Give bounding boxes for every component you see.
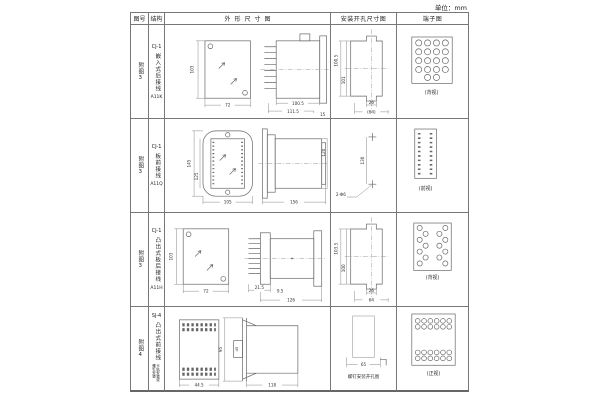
terminal-view-label: (前视) bbox=[418, 185, 432, 192]
mount-dim-v1: 103.5 bbox=[333, 242, 338, 254]
mount-dim-w2: (64) bbox=[367, 109, 376, 114]
outline-drawing-row1: 103 72 100.5 111.5 15 bbox=[165, 25, 331, 119]
outline-svg-row1: 103 72 100.5 111.5 15 bbox=[165, 25, 330, 118]
structure-label: 凸出式板后接线 bbox=[154, 237, 160, 283]
mounting-drawing-row2: 130 2-Φ6 bbox=[331, 119, 397, 213]
terminal-view-label: (背视) bbox=[425, 274, 439, 281]
mounting-drawing-row1: 100.5 101 26 (64) bbox=[331, 25, 397, 119]
dim-front-width: 105 bbox=[224, 200, 232, 205]
mount-dim-w1: 26 bbox=[369, 288, 375, 293]
mounting-drawing-row4: 65 螺钉安装开孔图 bbox=[331, 307, 397, 392]
dim-side-height: 120 bbox=[321, 148, 326, 156]
mounting-svg-row1: 100.5 101 26 (64) bbox=[331, 25, 396, 118]
outline-svg-row4: 44.5 95 45 118 bbox=[165, 308, 330, 389]
mounting-svg-row3: 103.5 100 26 64 bbox=[331, 213, 396, 306]
type-code-label: A11K bbox=[151, 95, 163, 100]
dim-front-height: 103 bbox=[190, 65, 195, 73]
terminal-svg-row4: (正视) bbox=[398, 308, 468, 389]
structure-label: 板前接线 bbox=[154, 153, 160, 179]
terminal-svg-row2: (前视) bbox=[398, 119, 468, 212]
dim-body-length: 118 bbox=[268, 383, 276, 388]
fig-no-row4: 附图4 bbox=[131, 307, 149, 392]
outline-svg-row2: 145 125 105 156 120 bbox=[165, 119, 330, 212]
dim-front-width: 72 bbox=[203, 289, 209, 294]
dim-flange: 15 bbox=[320, 112, 326, 117]
dim-inner: 45 bbox=[235, 346, 239, 351]
header-fig-no: 图号 bbox=[131, 13, 149, 25]
outline-drawing-row3: 103 72 21.5 9.5 126 bbox=[165, 213, 331, 307]
mounting-svg-row2: 130 2-Φ6 bbox=[331, 119, 396, 212]
header-mounting: 安装开孔尺寸图 bbox=[331, 13, 397, 25]
terminal-svg-row1: (背视) bbox=[398, 25, 468, 118]
mount-dim-w2: 64 bbox=[369, 297, 375, 302]
terminal-drawing-row4: (正视) bbox=[397, 307, 468, 392]
header-terminal: 端子图 bbox=[397, 13, 468, 25]
header-outline: 外形尺寸图 bbox=[165, 13, 331, 25]
outline-drawing-row2: 145 125 105 156 120 bbox=[165, 119, 331, 213]
dim-side-height: 95 bbox=[218, 346, 223, 352]
terminal-drawing-row1: (背视) bbox=[397, 25, 468, 119]
fig-no-label: 附图3 bbox=[137, 156, 143, 176]
structure-row1: CJ-1 嵌入式后接线 A11K bbox=[149, 25, 165, 119]
model-label: CJ-1 bbox=[152, 144, 162, 150]
type-code-label: A11H bbox=[150, 286, 162, 291]
fig-no-label: 附图3 bbox=[137, 250, 143, 270]
dim-fin-length: 21.5 bbox=[255, 285, 265, 290]
mounting-svg-row4: 65 螺钉安装开孔图 bbox=[331, 308, 396, 389]
mount-hole-note: 2-Φ6 bbox=[336, 192, 346, 197]
mount-dim-w1: 65 bbox=[361, 362, 367, 367]
dim-front-height: 145 bbox=[187, 159, 192, 167]
structure-label: 凸出式前接线 bbox=[154, 322, 160, 361]
model-label: CJ-1 bbox=[152, 44, 162, 50]
fig-no-row1: 附图3 bbox=[131, 25, 149, 119]
mounting-drawing-row3: 103.5 100 26 64 bbox=[331, 213, 397, 307]
mount-dim-v2: 101 bbox=[341, 76, 346, 84]
terminal-drawing-row3: (背视) bbox=[397, 213, 468, 307]
mount-dim-v2: 100 bbox=[341, 264, 346, 272]
mounting-note-label: 卡轨安装或螺钉安装 bbox=[152, 364, 160, 384]
fig-no-label: 附图3 bbox=[137, 62, 143, 82]
mount-dim-v1: 130 bbox=[360, 156, 365, 164]
unit-note: 单位：mm bbox=[435, 2, 467, 12]
outline-drawing-row4: 44.5 95 45 118 bbox=[165, 307, 331, 392]
mount-dim-v1: 100.5 bbox=[333, 54, 338, 66]
structure-row4: SJ-4 凸出式前接线 卡轨安装或螺钉安装 bbox=[149, 307, 165, 392]
model-label: CJ-1 bbox=[152, 228, 162, 234]
model-label: SJ-4 bbox=[152, 313, 161, 319]
fig-no-row2: 附图3 bbox=[131, 119, 149, 213]
fig-no-label: 附图4 bbox=[137, 339, 143, 359]
dim-total-length: 126 bbox=[287, 298, 295, 303]
mounting-caption: 螺钉安装开孔图 bbox=[348, 373, 380, 380]
dim-total-length: 111.5 bbox=[287, 109, 299, 114]
dim-front-width: 44.5 bbox=[195, 383, 205, 388]
structure-row3: CJ-1 凸出式板后接线 A11H bbox=[149, 213, 165, 307]
terminal-view-label: (正视) bbox=[426, 370, 440, 377]
structure-row2: CJ-1 板前接线 A11Q bbox=[149, 119, 165, 213]
terminal-svg-row3: (背视) bbox=[398, 213, 468, 306]
terminal-drawing-row2: (前视) bbox=[397, 119, 468, 213]
dim-body-length: 156 bbox=[290, 200, 298, 205]
dim-front-height: 103 bbox=[168, 252, 173, 260]
spec-table: 图号 结构 外形尺寸图 安装开孔尺寸图 端子图 附图3 CJ-1 嵌入式后接线 … bbox=[130, 12, 469, 392]
mount-dim-w1: 26 bbox=[369, 100, 375, 105]
header-structure: 结构 bbox=[149, 13, 165, 25]
outline-svg-row3: 103 72 21.5 9.5 126 bbox=[165, 213, 330, 306]
dim-body-length: 100.5 bbox=[292, 101, 304, 106]
structure-label: 嵌入式后接线 bbox=[154, 53, 160, 92]
type-code-label: A11Q bbox=[150, 182, 162, 187]
dim-plate: 9.5 bbox=[277, 289, 284, 294]
dim-inner-height: 125 bbox=[194, 172, 199, 180]
dim-front-width: 72 bbox=[225, 103, 231, 108]
terminal-view-label: (背视) bbox=[424, 89, 438, 96]
fig-no-row3: 附图3 bbox=[131, 213, 149, 307]
document-page: 单位：mm 图号 结构 外形尺寸图 安装开孔尺寸图 端子图 附图3 CJ-1 嵌… bbox=[0, 0, 600, 400]
